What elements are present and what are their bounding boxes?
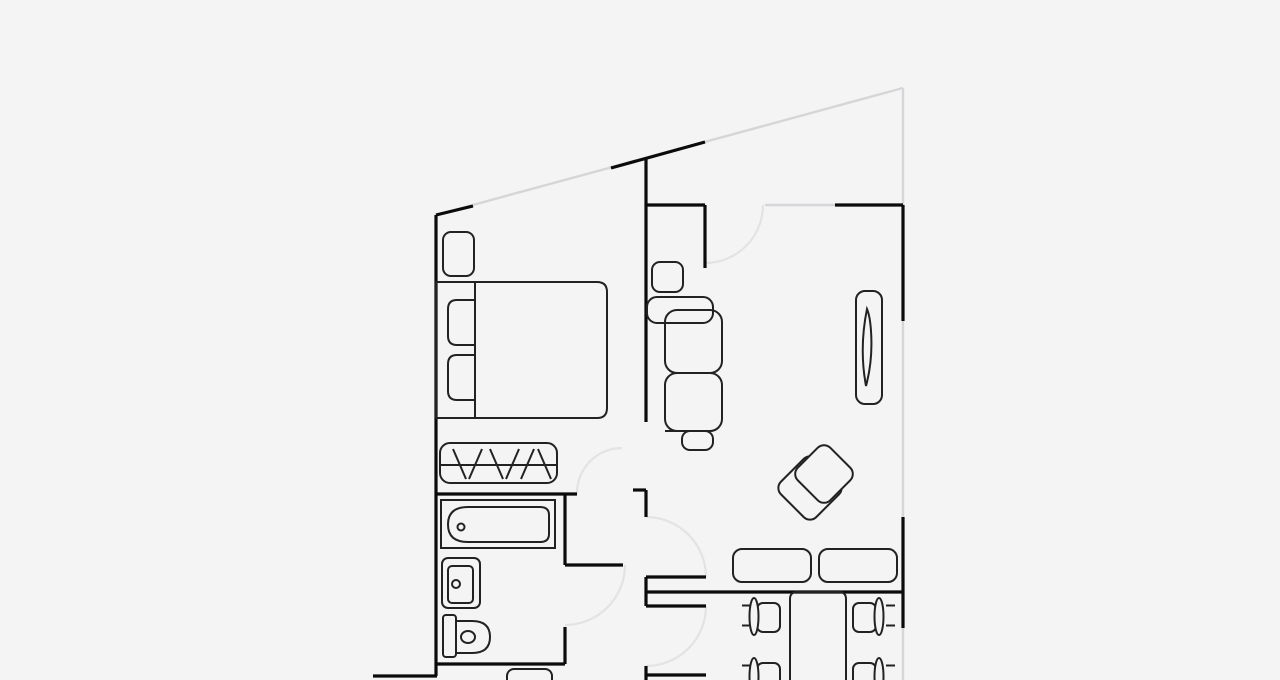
plan-background	[0, 0, 1280, 680]
floor-plan-drawing	[0, 0, 1280, 680]
floor-plan-stage	[0, 0, 1280, 680]
